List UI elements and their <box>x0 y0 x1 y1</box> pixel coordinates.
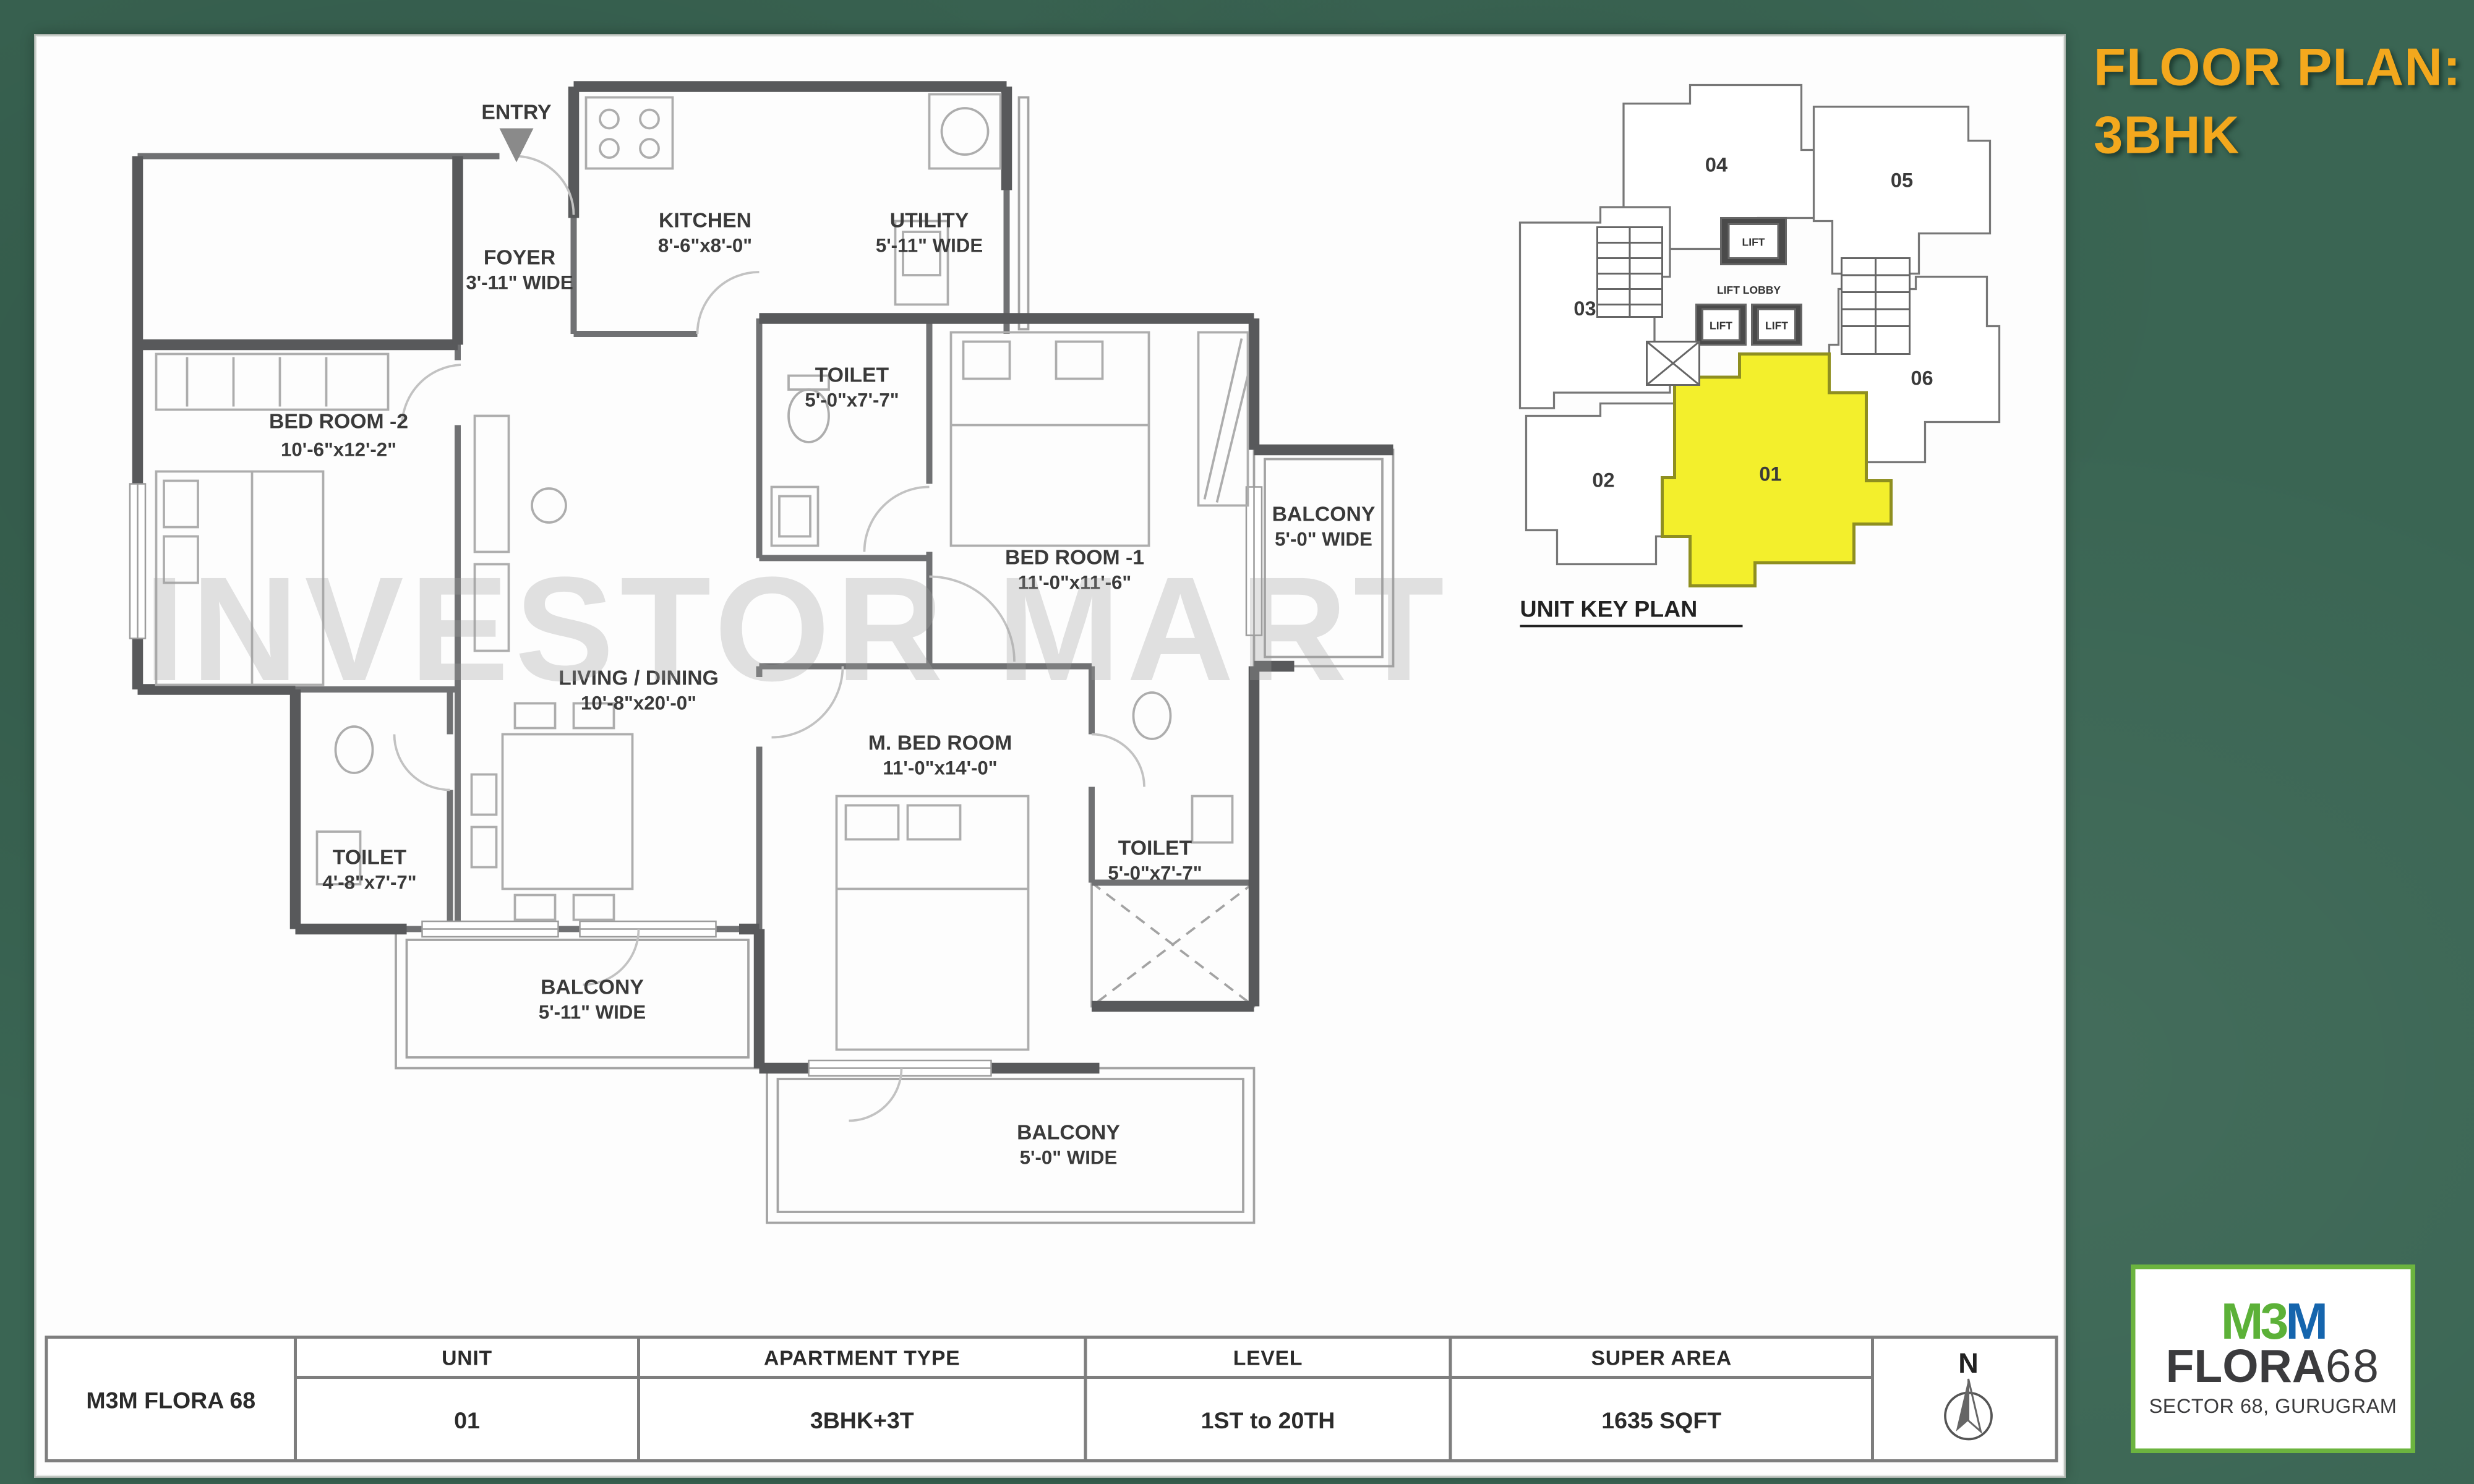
project-name-cell: M3M FLORA 68 <box>48 1339 294 1462</box>
toilet-top-dim: 5'-0"x7'-7" <box>805 390 899 411</box>
balcony-bl-label: BALCONY <box>541 976 644 999</box>
floorplan-drawing: ENTRY FOYER 3'-11" WIDE KITCHEN 8'-6"x8'… <box>36 36 2068 1331</box>
m3m-letter-m1: M <box>2221 1292 2261 1349</box>
toilet-left-label: TOILET <box>333 846 407 869</box>
lift-label-2: LIFT <box>1710 320 1732 332</box>
unit-06-label: 06 <box>1911 367 1933 390</box>
lift-label-3: LIFT <box>1765 320 1788 332</box>
living-dim: 10'-8"x20'-0" <box>581 693 696 714</box>
balcony-right-dim: 5'-0" WIDE <box>1275 529 1372 550</box>
unit-header: UNIT <box>294 1339 637 1379</box>
balcony-br-dim: 5'-0" WIDE <box>1020 1147 1118 1169</box>
m3m-brand-mark: M3M <box>2221 1300 2325 1343</box>
master-bedroom-label: M. BED ROOM <box>868 731 1012 755</box>
unit-01-label: 01 <box>1759 463 1781 485</box>
unit-key-plan-title: UNIT KEY PLAN <box>1520 596 1698 622</box>
toilet-top-label: TOILET <box>815 364 889 387</box>
floorplan-panel: ENTRY FOYER 3'-11" WIDE KITCHEN 8'-6"x8'… <box>34 34 2066 1478</box>
unit-key-plan: LIFT LIFT LOBBY LIFT LIFT 04 05 03 02 06… <box>1520 85 2000 626</box>
utility-label: UTILITY <box>890 209 969 232</box>
super-area-value: 1635 SQFT <box>1449 1379 1872 1462</box>
balcony-right-label: BALCONY <box>1272 503 1376 526</box>
service-shaft <box>1092 883 1254 1007</box>
slide-background: ENTRY FOYER 3'-11" WIDE KITCHEN 8'-6"x8'… <box>0 0 2474 1484</box>
foyer-label: FOYER <box>484 246 555 270</box>
lift-label-1: LIFT <box>1742 236 1765 249</box>
page-title-line2: 3BHK <box>2094 102 2462 170</box>
m3m-letter-m2: M <box>2285 1292 2325 1349</box>
lift-lobby-label: LIFT LOBBY <box>1717 284 1781 296</box>
apartment-type-header: APARTMENT TYPE <box>637 1339 1084 1379</box>
unit-05-label: 05 <box>1891 169 1913 192</box>
bedroom2-dim: 10'-6"x12'-2" <box>281 439 396 461</box>
foyer-dim: 3'-11" WIDE <box>466 272 573 294</box>
entry-label: ENTRY <box>481 101 551 124</box>
bedroom1-dim: 11'-0"x11'-6" <box>1018 572 1132 594</box>
page-title-line1: FLOOR PLAN: <box>2094 34 2462 102</box>
level-header: LEVEL <box>1084 1339 1449 1379</box>
toilet-right-label: TOILET <box>1118 837 1192 860</box>
utility-dim: 5'-11" WIDE <box>876 235 983 257</box>
balcony-bl-dim: 5'-11" WIDE <box>539 1002 646 1023</box>
balcony-br-label: BALCONY <box>1017 1121 1120 1145</box>
flora68-wordmark: FLORA68 <box>2166 1343 2381 1392</box>
super-area-header: SUPER AREA <box>1449 1339 1872 1379</box>
kitchen-label: KITCHEN <box>659 209 751 232</box>
logo-location: SECTOR 68, GURUGRAM <box>2149 1395 2397 1418</box>
unit-value: 01 <box>294 1379 637 1462</box>
bedroom2-label: BED ROOM -2 <box>269 410 408 433</box>
toilet-left-dim: 4'-8"x7'-7" <box>322 872 416 893</box>
unit-04-label: 04 <box>1705 154 1727 176</box>
m3m-letter-3: 3 <box>2261 1292 2286 1349</box>
north-compass-icon: N <box>1929 1347 2006 1455</box>
bedroom1-label: BED ROOM -1 <box>1005 546 1144 569</box>
apartment-type-value: 3BHK+3T <box>637 1379 1084 1462</box>
kitchen-dim: 8'-6"x8'-0" <box>658 235 752 257</box>
flora-number: 68 <box>2326 1341 2380 1392</box>
level-value: 1ST to 20TH <box>1084 1379 1449 1462</box>
living-label: LIVING / DINING <box>559 667 719 690</box>
flora-text: FLORA <box>2166 1341 2326 1392</box>
unit-03-label: 03 <box>1573 297 1596 320</box>
master-bedroom-dim: 11'-0"x14'-0" <box>883 757 997 779</box>
north-compass-cell: N <box>1871 1339 2061 1462</box>
door-arcs <box>395 156 1145 1121</box>
north-label: N <box>1958 1347 1978 1379</box>
unit-spec-table: M3M FLORA 68 UNIT APARTMENT TYPE LEVEL S… <box>45 1336 2058 1462</box>
unit-02-label: 02 <box>1592 469 1614 492</box>
m3m-flora-logo: M3M FLORA68 SECTOR 68, GURUGRAM <box>2131 1264 2415 1453</box>
toilet-right-dim: 5'-0"x7'-7" <box>1108 863 1202 884</box>
page-title: FLOOR PLAN: 3BHK <box>2094 34 2462 171</box>
